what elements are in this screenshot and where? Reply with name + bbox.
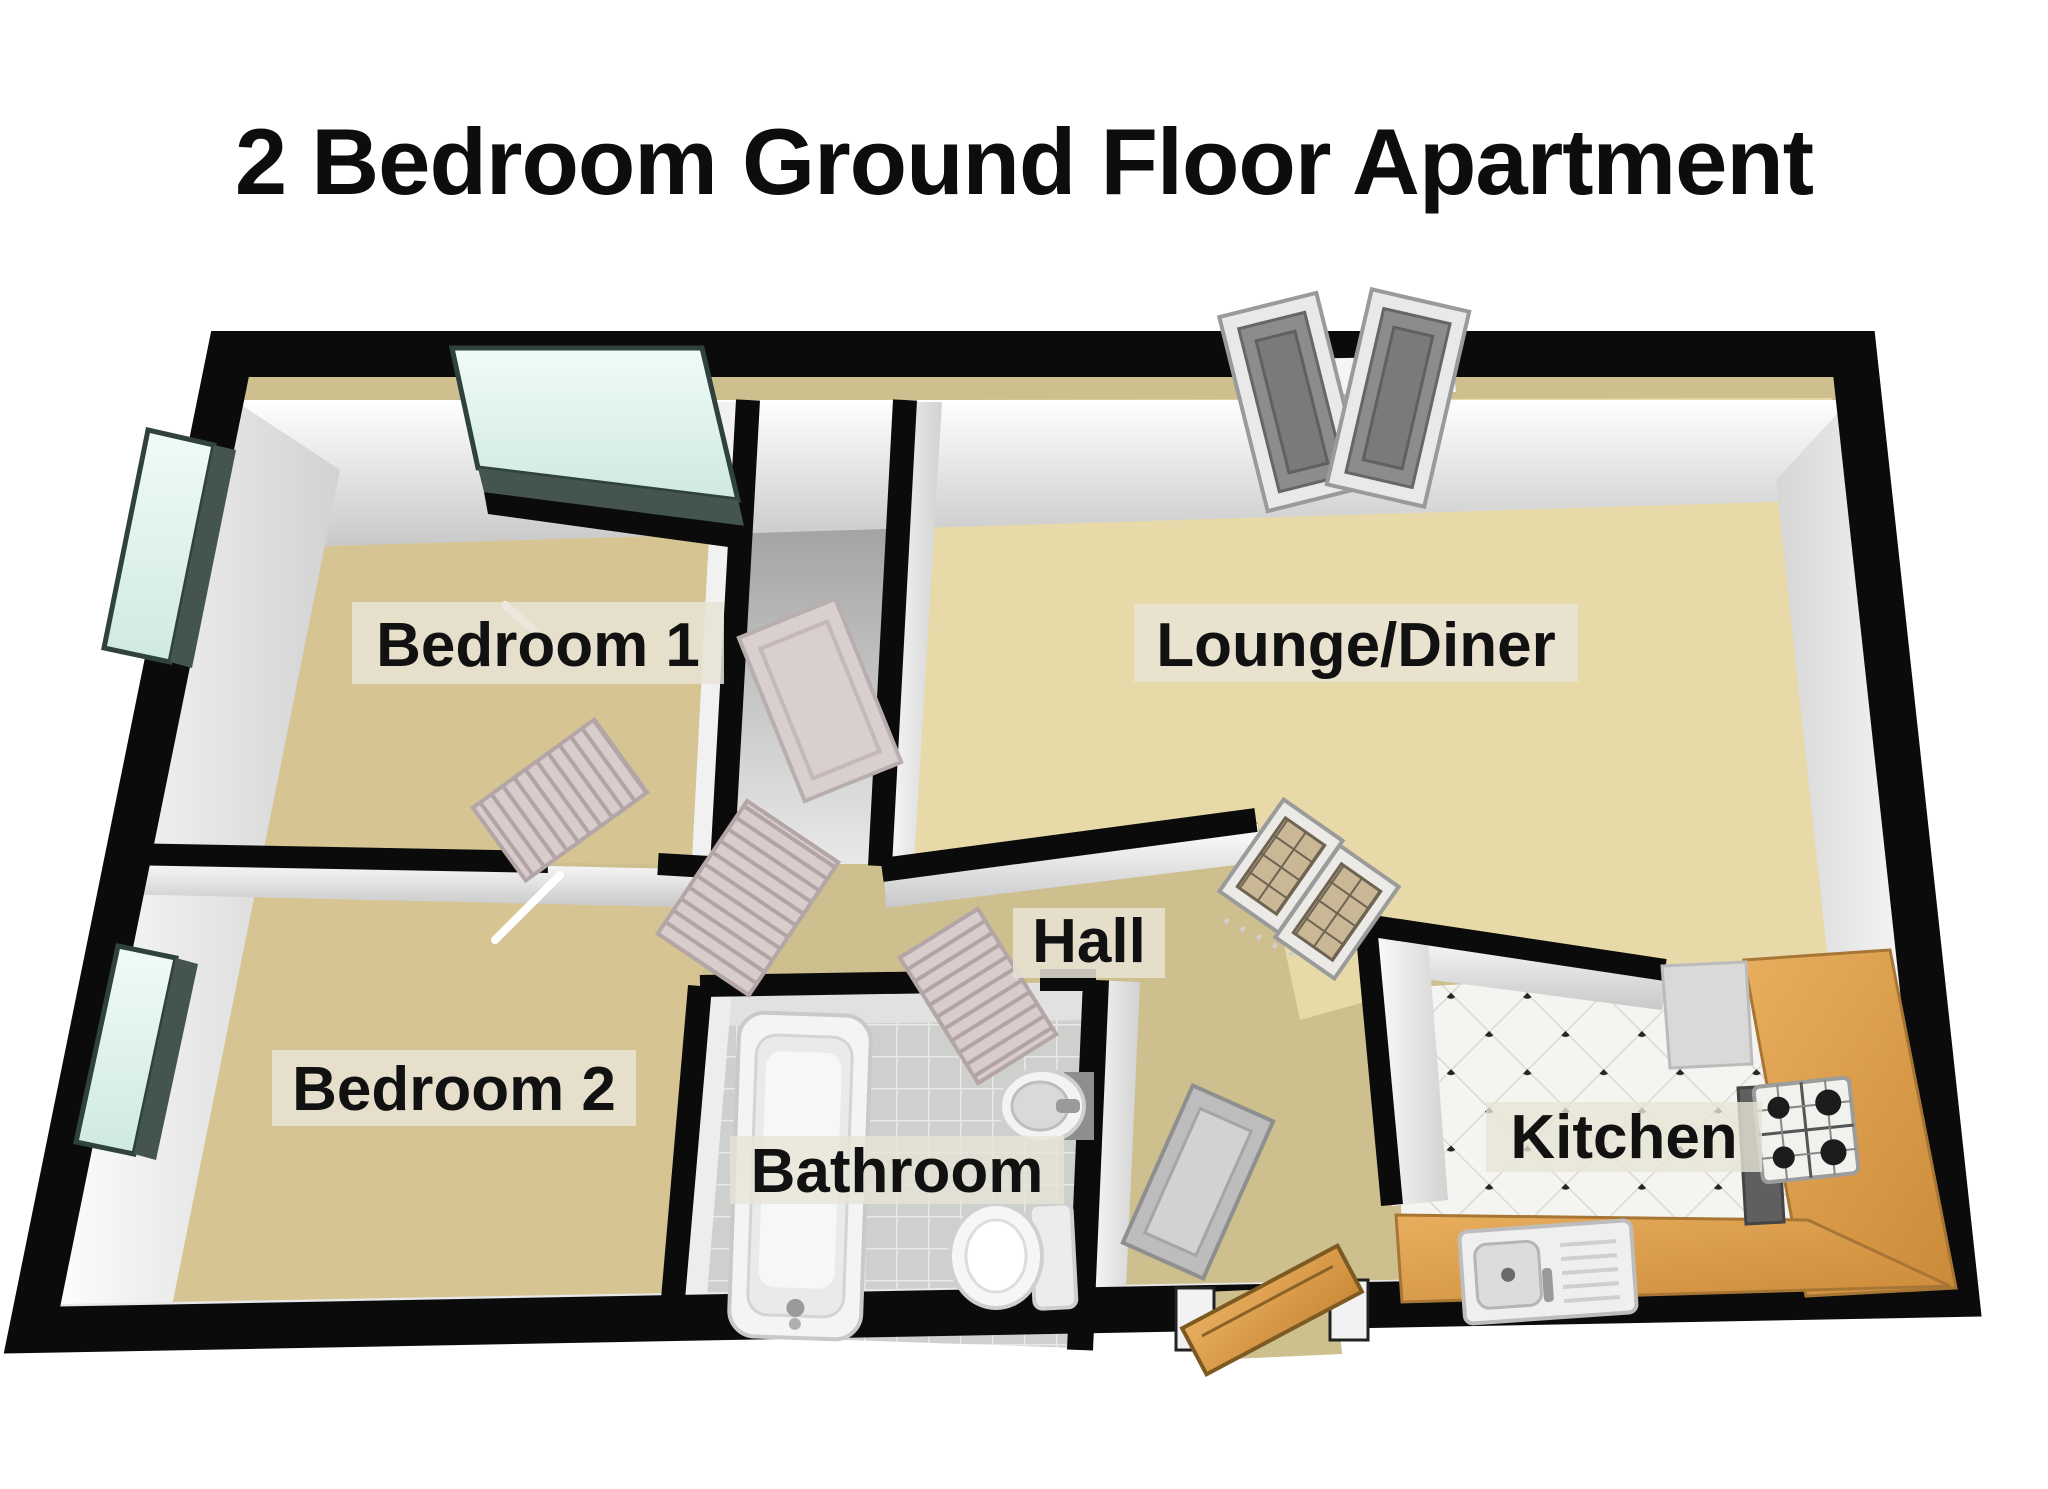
label-bedroom1: Bedroom 1 [352,602,724,684]
bedroom-divider-wall-a [120,854,548,862]
label-bedroom1-text: Bedroom 1 [376,611,700,680]
label-bathroom-text: Bathroom [751,1137,1044,1206]
floor-plan-page: 2 Bedroom Ground Floor Apartment [0,0,2048,1489]
kitchen-appliance [1662,962,1752,1068]
label-kitchen-text: Kitchen [1510,1103,1737,1172]
kitchen-hob [1753,1077,1859,1183]
bathroom-sink [1000,1070,1094,1142]
toilet-seat [966,1220,1026,1292]
label-hall-text: Hall [1032,907,1146,976]
label-lounge: Lounge/Diner [1134,604,1578,682]
label-bedroom2-text: Bedroom 2 [292,1055,616,1124]
bathroom-right-wall [1080,980,1096,1350]
kitchen-sink [1459,1220,1637,1324]
label-kitchen: Kitchen [1486,1102,1762,1172]
label-bedroom2: Bedroom 2 [272,1050,636,1126]
label-lounge-text: Lounge/Diner [1156,611,1556,680]
label-hall: Hall [1013,907,1165,978]
toilet [950,1203,1077,1309]
floor-plan: Bedroom 1 Lounge/Diner Hall Bedroom 2 Ba… [0,0,2048,1489]
label-bathroom: Bathroom [730,1136,1064,1206]
